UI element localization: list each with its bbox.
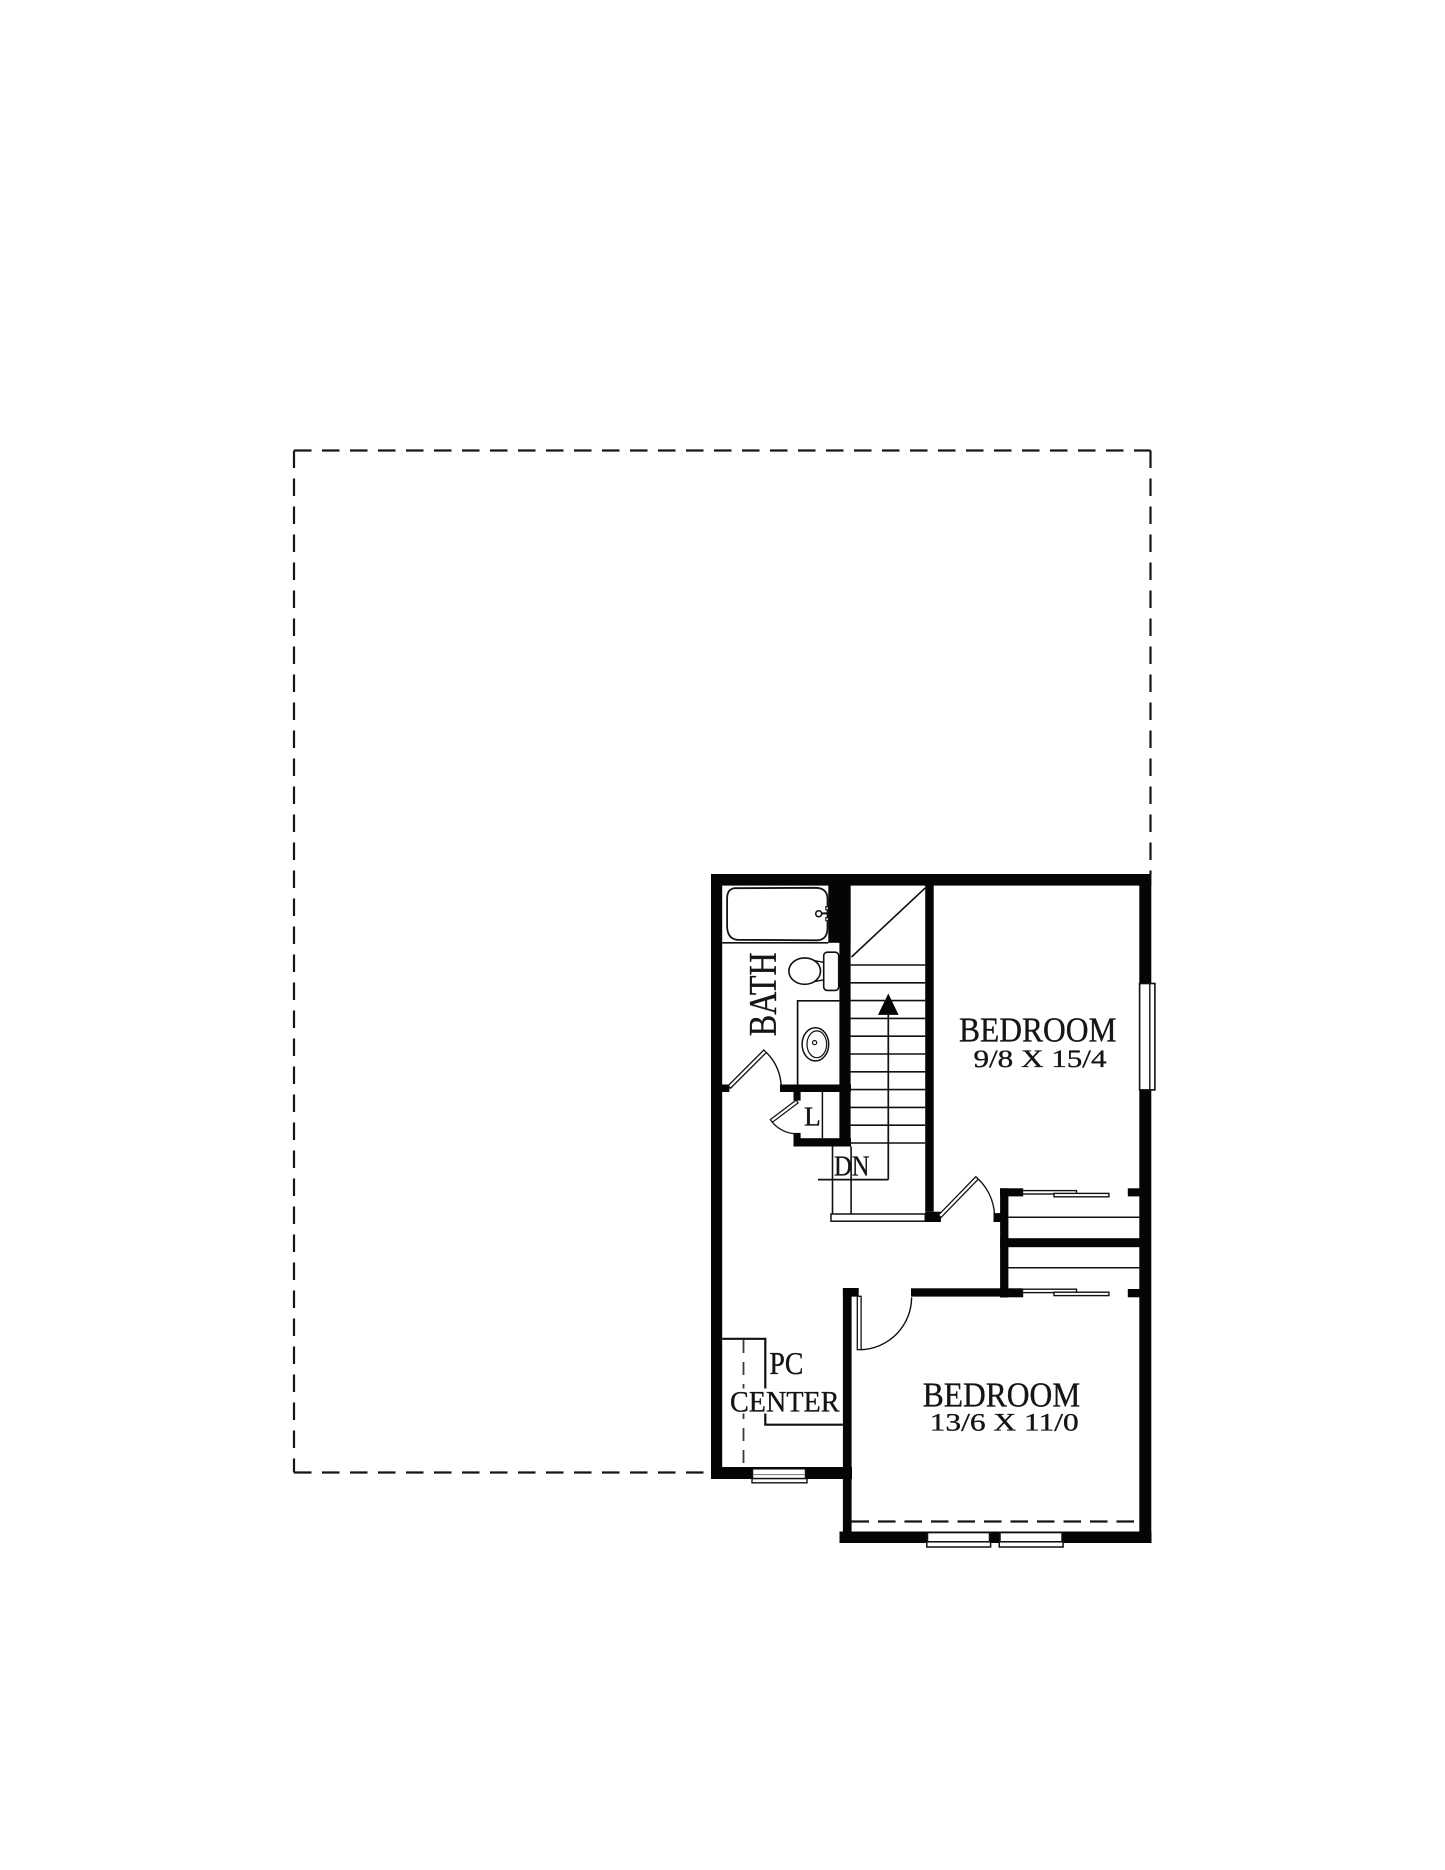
svg-text:CENTER: CENTER — [730, 1386, 840, 1418]
svg-text:DN: DN — [834, 1150, 870, 1182]
svg-text:BATH: BATH — [742, 952, 785, 1036]
svg-text:PC: PC — [769, 1346, 803, 1381]
svg-text:L: L — [804, 1100, 821, 1131]
svg-text:13/6 X 11/0: 13/6 X 11/0 — [930, 1407, 1079, 1436]
svg-text:9/8 X 15/4: 9/8 X 15/4 — [974, 1044, 1107, 1073]
